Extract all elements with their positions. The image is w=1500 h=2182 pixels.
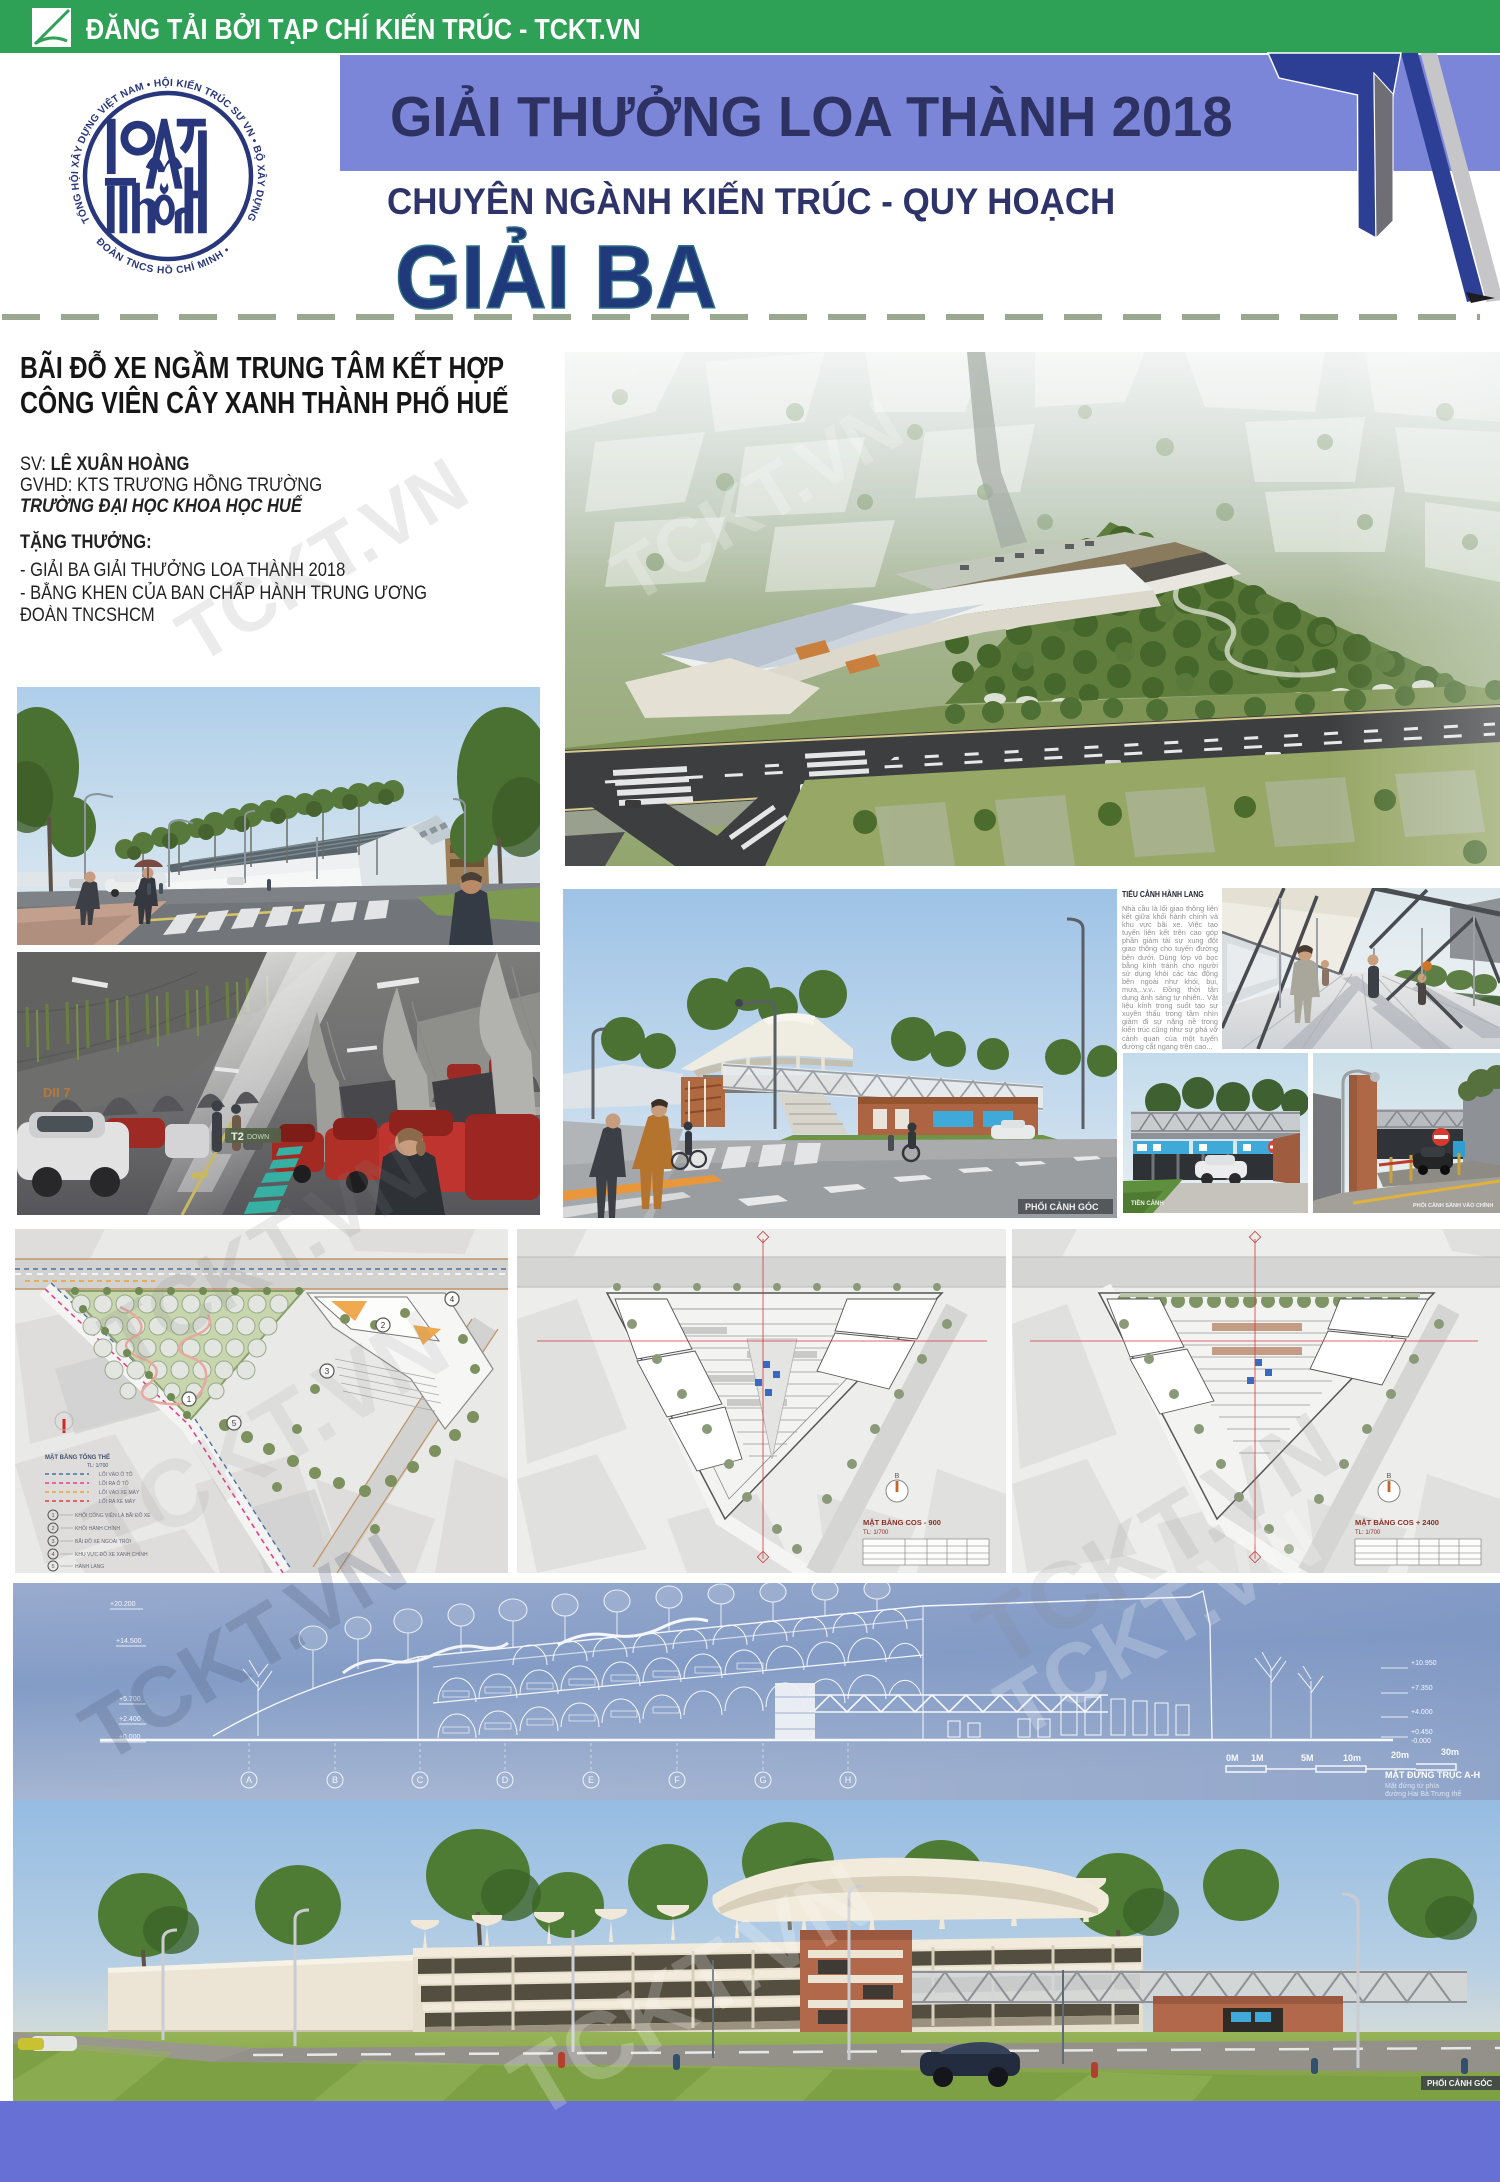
svg-text:MẶT ĐỨNG TRỤC A-H: MẶT ĐỨNG TRỤC A-H <box>1385 1769 1480 1780</box>
svg-text:DOWN: DOWN <box>247 1134 269 1141</box>
svg-text:E: E <box>588 1775 594 1785</box>
svg-text:4: 4 <box>51 1552 54 1558</box>
svg-text:20m: 20m <box>1391 1750 1409 1760</box>
svg-text:+10.950: +10.950 <box>1411 1660 1437 1667</box>
svg-text:H: H <box>845 1775 852 1785</box>
svg-text:+20.200: +20.200 <box>110 1601 136 1608</box>
svg-text:TL: 1/700: TL: 1/700 <box>863 1530 889 1536</box>
svg-text:2: 2 <box>51 1526 54 1532</box>
svg-text:1M: 1M <box>1251 1753 1264 1763</box>
svg-text:0M: 0M <box>1226 1753 1239 1763</box>
svg-text:3: 3 <box>51 1539 54 1545</box>
svg-text:+7.350: +7.350 <box>1411 1685 1433 1692</box>
svg-text:-0.000: -0.000 <box>1411 1738 1431 1745</box>
svg-text:B: B <box>1387 1473 1392 1480</box>
svg-text:B: B <box>895 1473 900 1480</box>
svg-text:PHỐI CẢNH GÓC: PHỐI CẢNH GÓC <box>1427 2078 1493 2088</box>
svg-text:+4.000: +4.000 <box>1411 1709 1433 1716</box>
svg-text:T2: T2 <box>231 1131 244 1143</box>
svg-text:TL: 1/700: TL: 1/700 <box>1355 1530 1381 1536</box>
svg-text:B: B <box>332 1775 338 1785</box>
svg-text:5M: 5M <box>1301 1753 1314 1763</box>
svg-text:+0.450: +0.450 <box>1411 1729 1433 1736</box>
svg-text:MẶT BẰNG COS + 2400: MẶT BẰNG COS + 2400 <box>1355 1518 1439 1527</box>
svg-text:1: 1 <box>51 1513 54 1519</box>
svg-text:MẶT BẰNG COS - 900: MẶT BẰNG COS - 900 <box>863 1518 941 1527</box>
svg-text:DII 7: DII 7 <box>43 1085 70 1100</box>
svg-text:HÀNH LANG: HÀNH LANG <box>75 1563 104 1570</box>
svg-text:đường Hai Bà Trưng thể: đường Hai Bà Trưng thể <box>1385 1790 1461 1798</box>
svg-text:MẶT BẰNG TỔNG THỂ: MẶT BẰNG TỔNG THỂ <box>45 1453 110 1461</box>
svg-text:D: D <box>502 1775 509 1785</box>
svg-text:4: 4 <box>450 1295 455 1304</box>
svg-text:F: F <box>674 1775 680 1785</box>
svg-text:PHỐI CẢNH GÓC: PHỐI CẢNH GÓC <box>1025 1201 1099 1212</box>
svg-text:G: G <box>759 1775 766 1785</box>
svg-text:10m: 10m <box>1343 1753 1361 1763</box>
svg-text:Mặt đứng từ phía: Mặt đứng từ phía <box>1385 1783 1439 1790</box>
svg-text:PHỐI CẢNH SẢNH VÀO CHÍNH: PHỐI CẢNH SẢNH VÀO CHÍNH <box>1413 1201 1493 1209</box>
svg-text:TL: 1/700: TL: 1/700 <box>87 1463 108 1469</box>
svg-text:TIỀN CẢNH: TIỀN CẢNH <box>1131 1200 1164 1207</box>
svg-text:A: A <box>246 1775 252 1785</box>
svg-text:5: 5 <box>51 1564 54 1570</box>
svg-text:+14.500: +14.500 <box>116 1638 142 1645</box>
svg-text:1: 1 <box>187 1395 192 1404</box>
svg-text:30m: 30m <box>1441 1747 1459 1757</box>
svg-text:C: C <box>417 1775 424 1785</box>
